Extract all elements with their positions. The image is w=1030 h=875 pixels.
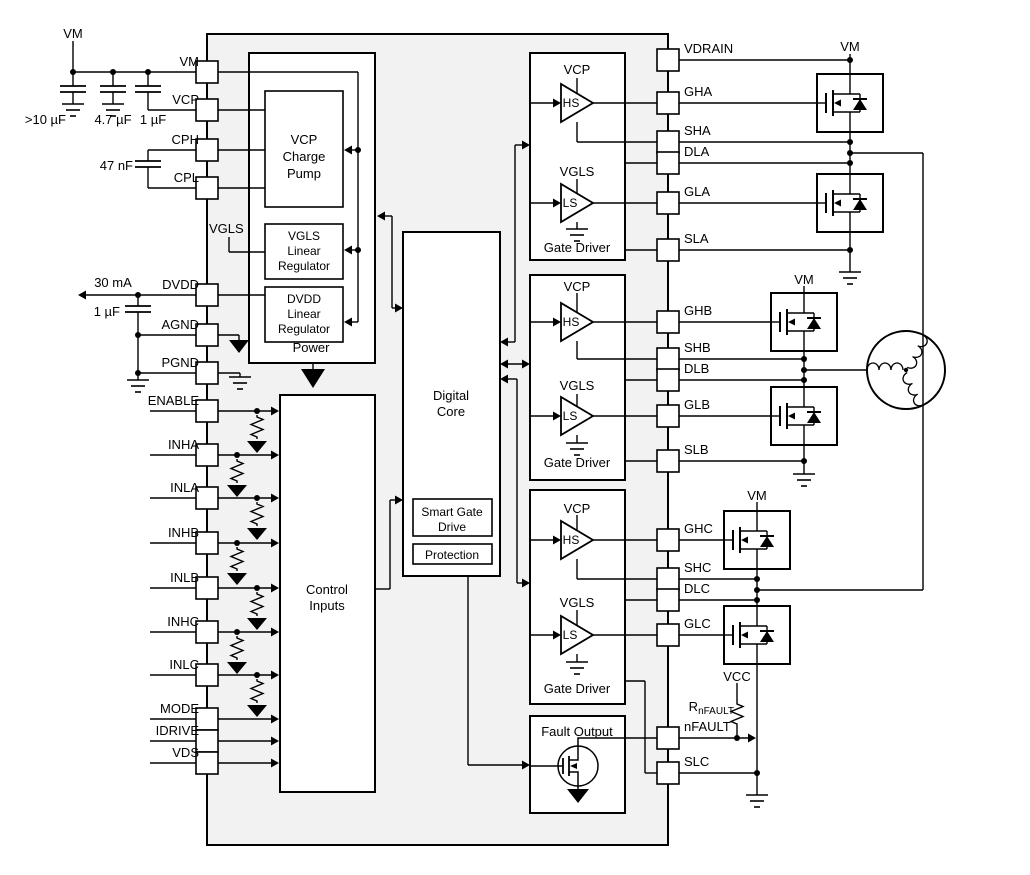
gd-c-hs: HS <box>563 533 580 547</box>
junction-dot <box>135 292 141 298</box>
pin-label-VM: VM <box>180 54 200 69</box>
protection-label: Protection <box>425 548 479 562</box>
motor <box>867 331 945 409</box>
vm-c-label: VM <box>747 488 767 503</box>
pin-INHC <box>196 621 218 643</box>
pin-GLB <box>657 405 679 427</box>
dvdd-reg-line3: Regulator <box>278 322 330 336</box>
junction-dot <box>145 69 151 75</box>
junction-dot <box>110 69 116 75</box>
gd-b-hs: HS <box>563 315 580 329</box>
junction-dot <box>847 139 853 145</box>
pin-SLA <box>657 239 679 261</box>
junction-dot <box>847 160 853 166</box>
junction-dot <box>135 332 141 338</box>
gd-c-ls: LS <box>563 628 578 642</box>
digital-core-line1: Digital <box>433 388 469 403</box>
junction-dot <box>234 452 240 458</box>
pin-label-AGND: AGND <box>161 317 199 332</box>
pin-label-SLA: SLA <box>684 231 709 246</box>
pin-label-DLA: DLA <box>684 144 710 159</box>
gd-c-vcp: VCP <box>564 501 591 516</box>
vgls-node-label: VGLS <box>209 221 244 236</box>
gd-a-label: Gate Driver <box>544 240 611 255</box>
control-inputs-line1: Control <box>306 582 348 597</box>
rnfault-r: R <box>689 699 698 714</box>
vgls-reg-line2: Linear <box>287 244 320 258</box>
mosfet <box>771 293 837 351</box>
pin-VM <box>196 61 218 83</box>
junction-dot <box>254 585 260 591</box>
pin-INHA <box>196 444 218 466</box>
pin-INHB <box>196 532 218 554</box>
cap-47uf-label: 4.7 µF <box>94 112 131 127</box>
rnfault-sub: nFAULT <box>698 706 734 717</box>
gd-c-vgls: VGLS <box>560 595 595 610</box>
pin-label-nFAULT: nFAULT <box>684 719 731 734</box>
gd-a-vgls: VGLS <box>560 164 595 179</box>
pin-label-DVDD: DVDD <box>162 277 199 292</box>
block-diagram: VMVCPCPHCPLDVDDAGNDPGNDENABLEINHAINLAINH… <box>0 0 1030 875</box>
vcp-pump-line2: Charge <box>283 149 326 164</box>
pin-label-ENABLE: ENABLE <box>148 393 200 408</box>
pin-label-PGND: PGND <box>161 355 199 370</box>
smart-gate-drive-line2: Drive <box>438 520 466 534</box>
pin-label-SLB: SLB <box>684 442 709 457</box>
pin-label-GLC: GLC <box>684 616 711 631</box>
capacitor <box>60 86 86 92</box>
pin-label-VCP: VCP <box>172 92 199 107</box>
pin-label-GHB: GHB <box>684 303 712 318</box>
junction-dot <box>254 408 260 414</box>
gd-b-vgls: VGLS <box>560 378 595 393</box>
cap-1uf-label: 1 µF <box>140 112 166 127</box>
pin-label-GHC: GHC <box>684 521 713 536</box>
capacitor <box>125 306 151 312</box>
pin-DLA <box>657 152 679 174</box>
pin-GHB <box>657 311 679 333</box>
dvdd-reg-line2: Linear <box>287 307 320 321</box>
ground-symbol <box>793 474 815 486</box>
gd-a-ls: LS <box>563 196 578 210</box>
pin-label-INHC: INHC <box>167 614 199 629</box>
ground-symbol <box>746 795 768 807</box>
dvdd-reg-line1: DVDD <box>287 292 321 306</box>
pin-SHB <box>657 348 679 370</box>
pin-label-MODE: MODE <box>160 701 199 716</box>
pin-SHC <box>657 568 679 590</box>
gd-b-vcp: VCP <box>564 279 591 294</box>
junction-dot <box>754 587 760 593</box>
pin-GHC <box>657 529 679 551</box>
pin-GLC <box>657 624 679 646</box>
pin-AGND <box>196 324 218 346</box>
pin-PGND <box>196 362 218 384</box>
vcp-pump-line1: VCP <box>291 132 318 147</box>
pin-label-INLA: INLA <box>170 480 199 495</box>
junction-dot <box>135 370 141 376</box>
junction-dot <box>234 540 240 546</box>
capacitor <box>100 86 126 92</box>
dvdd-current-label: 30 mA <box>94 275 132 290</box>
vm-b-label: VM <box>794 272 814 287</box>
pin-INLA <box>196 487 218 509</box>
pin-DVDD <box>196 284 218 306</box>
pin-MODE <box>196 708 218 730</box>
junction-dot <box>754 576 760 582</box>
pin-GLA <box>657 192 679 214</box>
gd-a-vcp: VCP <box>564 62 591 77</box>
pin-GHA <box>657 92 679 114</box>
pin-CPL <box>196 177 218 199</box>
pin-SLC <box>657 762 679 784</box>
rnfault-label: RnFAULT <box>689 699 734 717</box>
ground-symbol <box>839 272 861 284</box>
pin-SLB <box>657 450 679 472</box>
pin-VDRAIN <box>657 49 679 71</box>
vm-a-label: VM <box>840 39 860 54</box>
pin-VCP <box>196 99 218 121</box>
pin-CPH <box>196 139 218 161</box>
junction-dot <box>847 57 853 63</box>
junction-dot <box>70 69 76 75</box>
power-label: Power <box>293 340 331 355</box>
junction-dot <box>801 356 807 362</box>
pin-label-SHA: SHA <box>684 123 711 138</box>
pin-DLB <box>657 369 679 391</box>
capacitor <box>135 86 161 92</box>
junction-dot <box>847 247 853 253</box>
junction-dot <box>754 770 760 776</box>
junction-dot <box>355 147 361 153</box>
pin-label-DLB: DLB <box>684 361 709 376</box>
cap-bulk-label: >10 µF <box>25 112 66 127</box>
pin-label-INLB: INLB <box>170 570 199 585</box>
vgls-reg-line3: Regulator <box>278 259 330 273</box>
arrowhead <box>748 734 756 743</box>
pin-IDRIVE <box>196 730 218 752</box>
junction-dot <box>801 367 807 373</box>
gd-a-hs: HS <box>563 96 580 110</box>
arrowhead <box>78 291 86 300</box>
vm-top-label: VM <box>63 26 83 41</box>
mosfet <box>817 174 883 232</box>
ground-symbol <box>127 380 149 392</box>
pin-label-INHB: INHB <box>168 525 199 540</box>
gd-b-label: Gate Driver <box>544 455 611 470</box>
smart-gate-drive-line1: Smart Gate <box>421 505 483 519</box>
pin-INLB <box>196 577 218 599</box>
junction-dot <box>254 672 260 678</box>
mosfet <box>724 606 790 664</box>
junction-dot <box>801 377 807 383</box>
pin-INLC <box>196 664 218 686</box>
pin-label-GLB: GLB <box>684 397 710 412</box>
junction-dot <box>754 597 760 603</box>
vgls-reg-line1: VGLS <box>288 229 320 243</box>
digital-core-line2: Core <box>437 404 465 419</box>
pin-label-GHA: GHA <box>684 84 713 99</box>
gd-b-ls: LS <box>563 409 578 423</box>
pin-label-VDRAIN: VDRAIN <box>684 41 733 56</box>
pin-label-SLC: SLC <box>684 754 709 769</box>
pin-VDS <box>196 752 218 774</box>
dvdd-cap-label: 1 µF <box>94 304 120 319</box>
junction-dot <box>355 247 361 253</box>
junction-dot <box>734 735 740 741</box>
pin-label-VDS: VDS <box>172 745 199 760</box>
pin-label-INHA: INHA <box>168 437 199 452</box>
pin-label-INLC: INLC <box>169 657 199 672</box>
junction-dot <box>847 150 853 156</box>
junction-dot <box>801 458 807 464</box>
pin-label-SHC: SHC <box>684 560 711 575</box>
fault-output-label: Fault Output <box>541 724 613 739</box>
pin-label-SHB: SHB <box>684 340 711 355</box>
vcc-label: VCC <box>723 669 750 684</box>
pin-label-CPL: CPL <box>174 170 199 185</box>
pin-label-IDRIVE: IDRIVE <box>156 723 200 738</box>
mosfet <box>724 511 790 569</box>
junction-dot <box>254 495 260 501</box>
mosfet <box>817 74 883 132</box>
pin-DLC <box>657 589 679 611</box>
cap-47nf-label: 47 nF <box>100 158 133 173</box>
pin-ENABLE <box>196 400 218 422</box>
pin-nFAULT <box>657 727 679 749</box>
gd-c-label: Gate Driver <box>544 681 611 696</box>
vcp-pump-line3: Pump <box>287 166 321 181</box>
pin-label-DLC: DLC <box>684 581 710 596</box>
mosfet <box>771 387 837 445</box>
capacitor <box>135 161 161 167</box>
junction-dot <box>234 629 240 635</box>
pin-label-GLA: GLA <box>684 184 710 199</box>
control-inputs-line2: Inputs <box>309 598 345 613</box>
pin-SHA <box>657 131 679 153</box>
pin-label-CPH: CPH <box>172 132 199 147</box>
